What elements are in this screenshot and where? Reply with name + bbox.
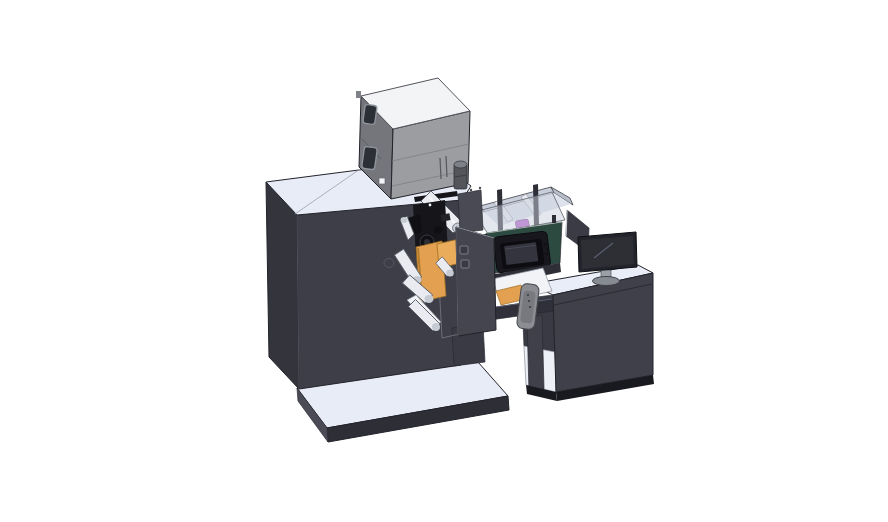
- idler-gear: [434, 226, 442, 234]
- sight-window-upper: [363, 104, 378, 124]
- sensor-dot: [429, 204, 432, 207]
- supply-box: [356, 78, 470, 199]
- pendant-button-2: [528, 300, 530, 302]
- unwind-roller-2-cap: [425, 295, 434, 303]
- pendant-button-1: [527, 294, 529, 296]
- access-door: [456, 227, 496, 336]
- unwind-roller-3-cap: [432, 323, 440, 331]
- door-pad-1: [460, 246, 468, 254]
- monitor-base: [593, 277, 620, 286]
- supply-box-latch: [379, 178, 385, 184]
- cabinet-left-side: [266, 182, 299, 389]
- access-door-upper: [458, 190, 483, 233]
- cad-render-canvas: [0, 0, 888, 522]
- top-screw-3: [479, 187, 481, 189]
- roller-stub-right-cap: [446, 270, 454, 277]
- sight-window-lower: [362, 146, 378, 170]
- monitor-screen: [581, 236, 634, 269]
- hinge-nub: [356, 91, 361, 98]
- vent-cylinder-cap: [454, 161, 467, 168]
- door-pad-2: [461, 260, 469, 268]
- printing-machine-assembly: [0, 0, 888, 522]
- pendant-button-3: [529, 306, 531, 308]
- top-screw-1: [470, 189, 472, 191]
- roller-stub-left-cap: [401, 217, 408, 223]
- antenna-nub: [552, 215, 556, 223]
